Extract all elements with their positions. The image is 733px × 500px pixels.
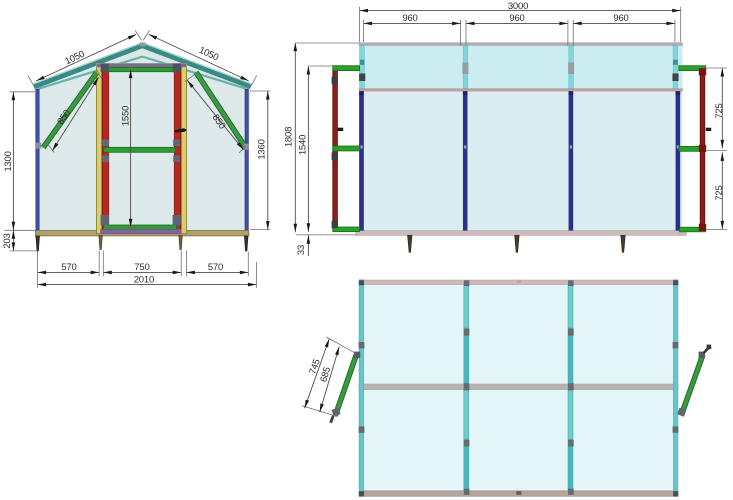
svg-text:725: 725	[714, 185, 725, 200]
svg-text:33: 33	[296, 245, 307, 255]
svg-text:1550: 1550	[121, 106, 132, 126]
svg-text:570: 570	[208, 262, 223, 273]
svg-text:2010: 2010	[134, 274, 154, 285]
svg-text:1540: 1540	[298, 135, 309, 155]
svg-text:960: 960	[509, 13, 524, 24]
svg-text:1808: 1808	[283, 127, 294, 147]
svg-text:570: 570	[61, 262, 76, 273]
svg-text:725: 725	[714, 103, 725, 118]
svg-text:1360: 1360	[257, 139, 268, 159]
svg-text:3000: 3000	[508, 1, 528, 12]
svg-text:960: 960	[613, 13, 628, 24]
svg-text:203: 203	[2, 233, 13, 248]
svg-text:1300: 1300	[3, 151, 14, 171]
svg-text:960: 960	[402, 13, 417, 24]
svg-text:750: 750	[134, 262, 149, 273]
